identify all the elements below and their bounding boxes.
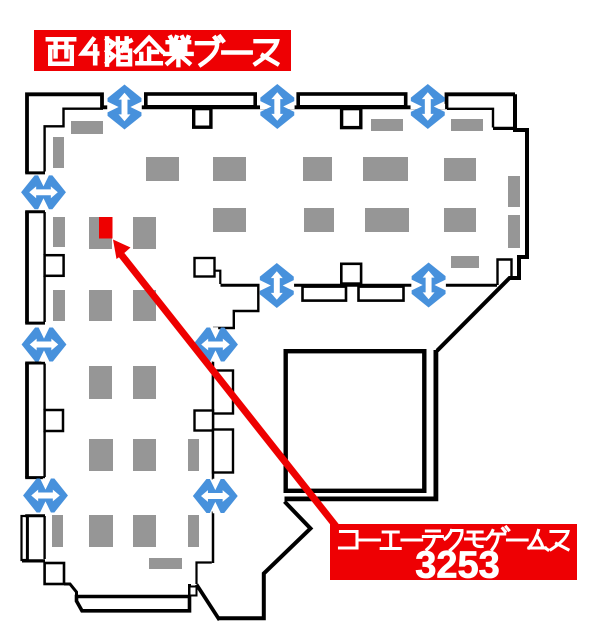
svg-text:3253: 3253 — [415, 545, 500, 587]
